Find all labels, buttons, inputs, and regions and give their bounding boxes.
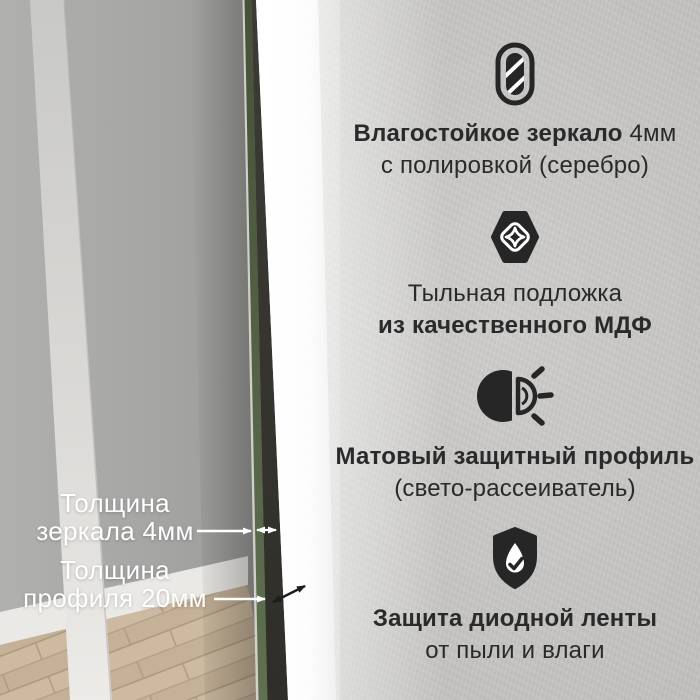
feature-line1-regular: 4мм [623,120,677,147]
callout-line2: профиля 20мм [15,584,215,612]
feature-moisture-resistant-mirror: Влагостойкое зеркало 4мм с полировкой (с… [332,42,698,182]
callout-mirror-thickness: Толщина зеркала 4мм [15,489,215,545]
feature-line2-bold: из качественного МДФ [378,312,652,339]
callout-profile-thickness: Толщина профиля 20мм [15,556,215,612]
feature-text: Матовый защитный профиль (свето-рассеива… [336,441,695,505]
feature-line2-regular: от пыли и влаги [425,637,605,664]
feature-matte-profile: Матовый защитный профиль (свето-рассеива… [332,365,698,505]
feature-line2-regular: с полировкой (серебро) [381,152,649,179]
callout-line2: зеркала 4мм [15,517,215,545]
mirror-icon [495,42,535,106]
callout-line1: Толщина [15,556,215,584]
shield-check-icon [491,526,539,590]
feature-led-protection: Защита диодной ленты от пыли и влаги [332,526,698,667]
feature-line1-regular: Тыльная подложка [408,280,622,307]
mdf-board-icon [490,209,540,265]
feature-line1-bold: Защита диодной ленты [373,605,657,632]
feature-text: Тыльная подложка из качественного МДФ [378,278,652,342]
product-infographic: Влагостойкое зеркало 4мм с полировкой (с… [0,0,700,700]
feature-line2-regular: (свето-рассеиватель) [394,475,636,502]
light-diffuser-icon [476,365,554,427]
feature-text: Влагостойкое зеркало 4мм с полировкой (с… [354,118,677,182]
callout-line1: Толщина [15,489,215,517]
feature-text: Защита диодной ленты от пыли и влаги [373,603,657,667]
feature-line1-bold: Матовый защитный профиль [336,443,695,470]
feature-line1-bold: Влагостойкое зеркало [354,120,623,147]
feature-mdf-backing: Тыльная подложка из качественного МДФ [332,209,698,342]
